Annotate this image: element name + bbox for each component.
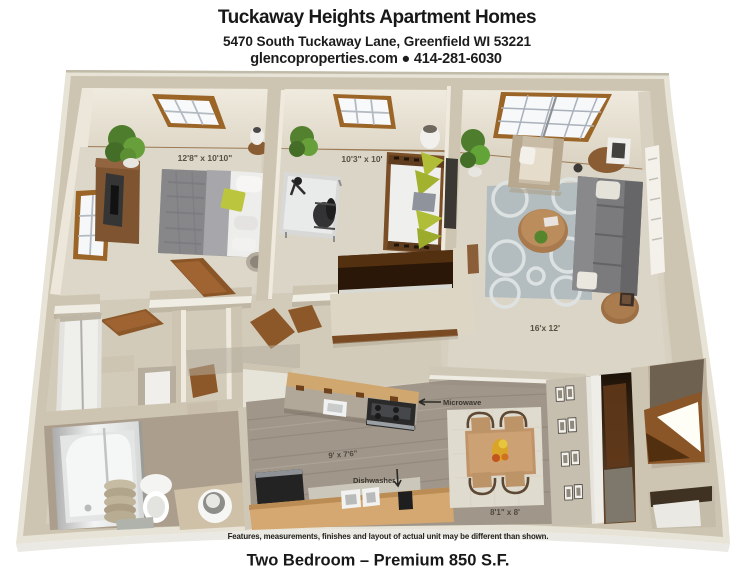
svg-text:Dishwasher: Dishwasher — [353, 476, 395, 485]
svg-text:Two Bedroom – Premium 850 S.F.: Two Bedroom – Premium 850 S.F. — [247, 552, 510, 570]
svg-text:8'1" x 8': 8'1" x 8' — [490, 508, 520, 517]
svg-text:Microwave: Microwave — [443, 398, 481, 407]
svg-text:16'x 12': 16'x 12' — [530, 323, 560, 333]
svg-text:12'8" x 10'10": 12'8" x 10'10" — [178, 153, 233, 163]
svg-text:Features, measurements, finish: Features, measurements, finishes and lay… — [228, 532, 549, 541]
svg-text:glencoproperties.com ● 414-281: glencoproperties.com ● 414-281-6030 — [250, 51, 502, 67]
svg-text:Tuckaway Heights Apartment Hom: Tuckaway Heights Apartment Homes — [218, 7, 536, 28]
svg-text:5470 South Tuckaway Lane, Gree: 5470 South Tuckaway Lane, Greenfield WI … — [223, 34, 532, 49]
svg-text:10'3" x 10': 10'3" x 10' — [341, 154, 382, 164]
